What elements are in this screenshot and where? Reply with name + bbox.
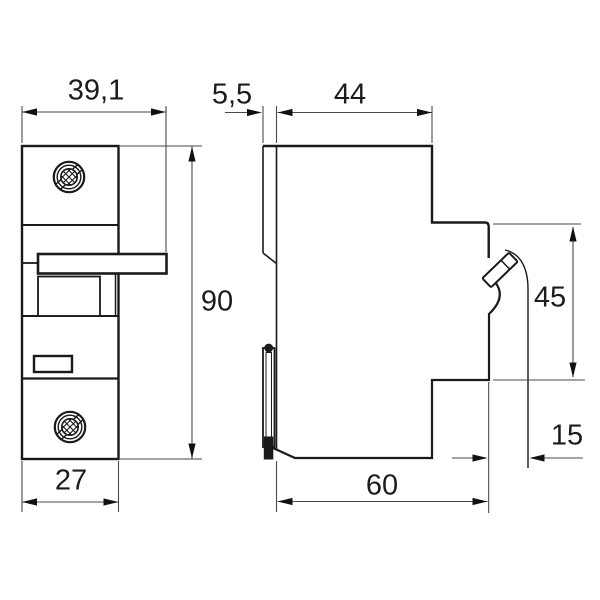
side-outline-lower [273, 282, 500, 458]
side-panel-chamfer [263, 253, 277, 264]
clip-bottom-latch [264, 437, 274, 460]
clip-spring-dome [264, 344, 273, 353]
dim-label-panel-depth: 5,5 [212, 81, 252, 110]
side-outline-upper [263, 146, 489, 258]
technical-drawing-canvas: 39,1 5,5 44 90 45 15 27 60 [0, 0, 600, 600]
label-window [34, 356, 72, 372]
top-screw-icon [54, 162, 84, 192]
bottom-screw-icon [55, 412, 85, 442]
din-rail-clip [263, 344, 275, 460]
dim-label-rear-height: 45 [534, 284, 566, 313]
dim-label-overall-width: 39,1 [68, 77, 124, 106]
front-view [22, 146, 167, 459]
release-hook-curve [505, 250, 528, 468]
dim-label-hook-depth: 15 [551, 422, 583, 451]
dim-label-height: 90 [201, 288, 233, 317]
toggle-recess [38, 277, 100, 317]
dim-label-upper-depth: 44 [334, 81, 366, 110]
dim-label-body-width: 27 [55, 467, 87, 496]
dim-label-lower-depth: 60 [366, 472, 398, 501]
toggle-lever [38, 254, 167, 274]
